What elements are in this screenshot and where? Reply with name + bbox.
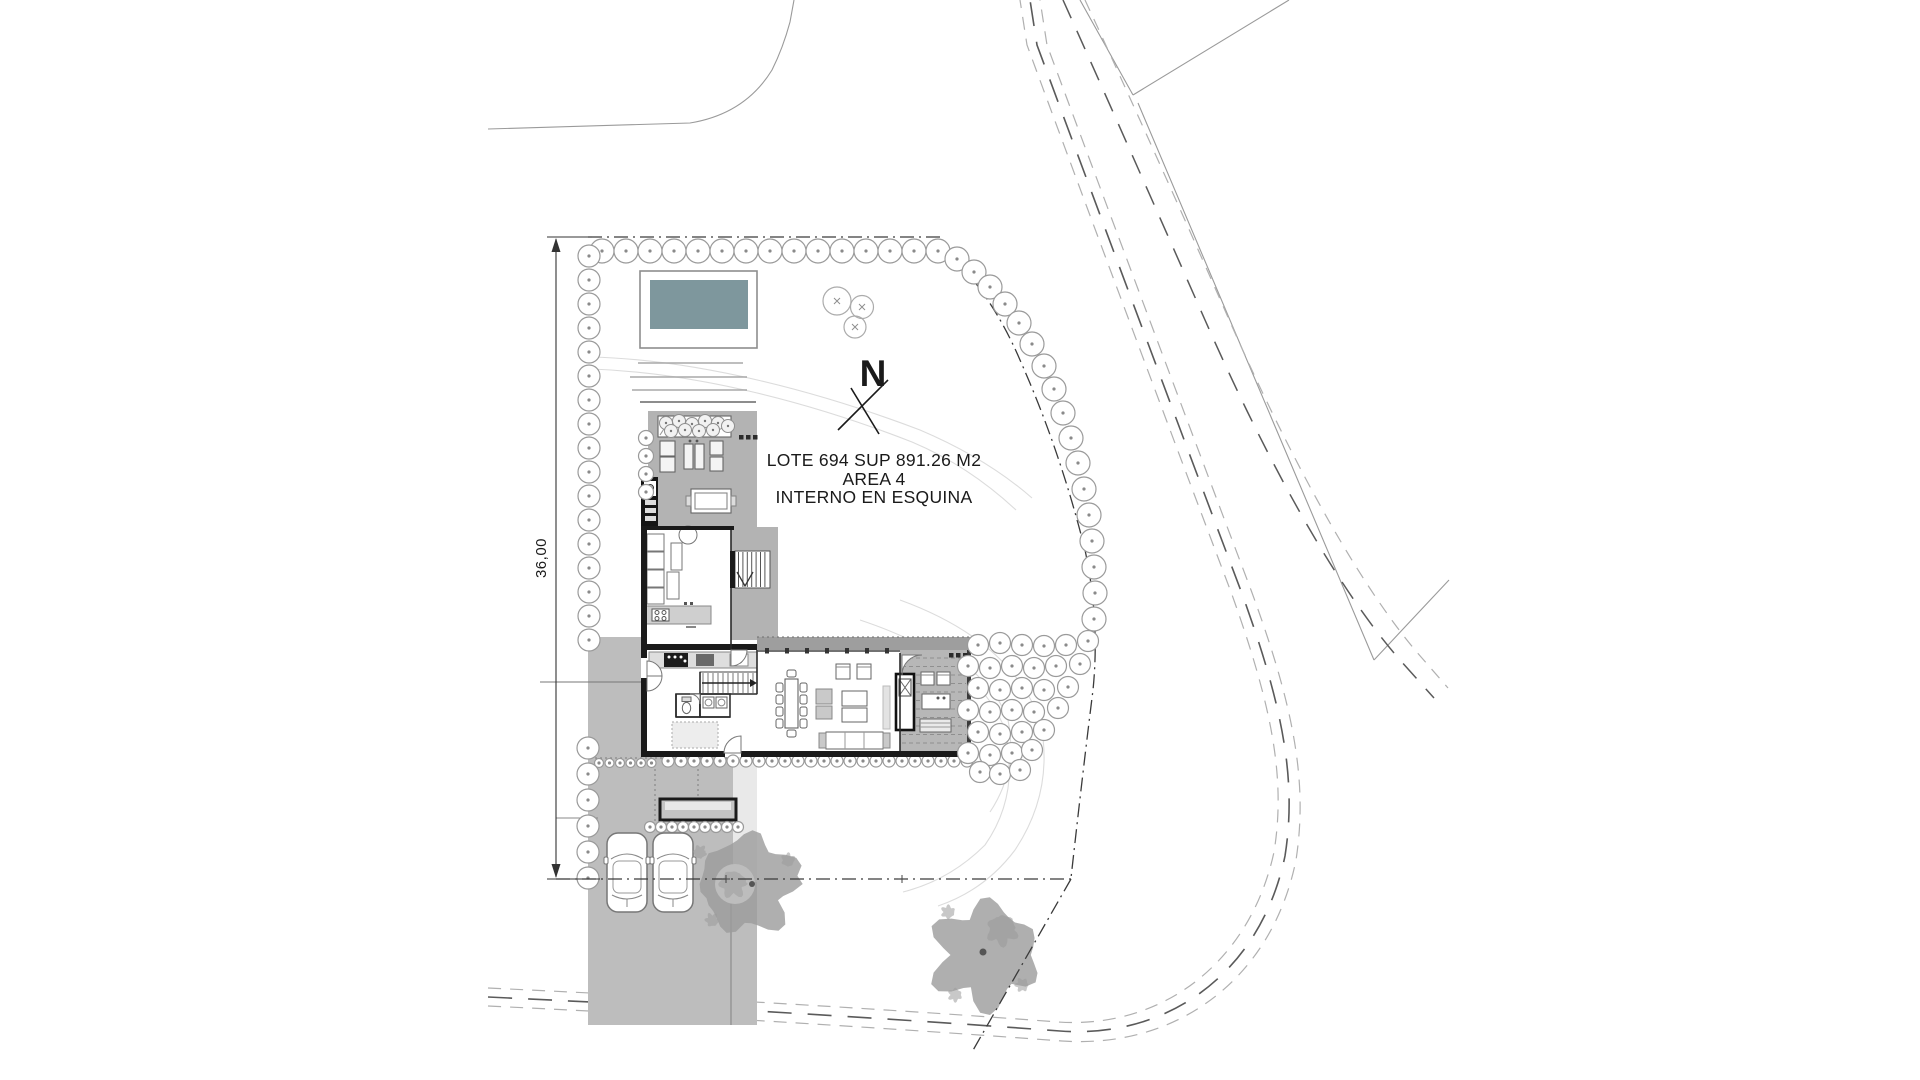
lot-label-line3: INTERNO EN ESQUINA [776, 487, 973, 507]
road-centerlines-diagonal [1063, 0, 1448, 698]
site-plan-canvas: 36,00 N LOTE 694 SUP 891.26 M2 AREA 4 IN… [0, 0, 1920, 1080]
sofa [826, 732, 883, 749]
lounge-seat [660, 457, 675, 472]
north-arrow: N [838, 353, 888, 434]
sun-lounger [684, 444, 693, 469]
laundry [700, 694, 730, 717]
armchair [836, 664, 850, 679]
neighbor-lot-line-1 [1138, 103, 1374, 660]
deck-chair [921, 672, 934, 685]
bathroom [676, 694, 700, 717]
deck-lounger [920, 719, 951, 732]
wall-west-upper [641, 526, 647, 658]
cabinet [671, 543, 682, 570]
pool-water [650, 280, 748, 329]
rug-edge [883, 686, 890, 729]
coffee-table [842, 708, 867, 722]
lot-label-line2: AREA 4 [842, 469, 905, 489]
stairs-upper [735, 551, 770, 588]
deck-chair [937, 672, 950, 685]
pool [640, 271, 757, 348]
lounge-seat [660, 441, 675, 456]
site-plan-drawing: 36,00 N LOTE 694 SUP 891.26 M2 AREA 4 IN… [0, 0, 1920, 1080]
wall-south-a [641, 751, 725, 757]
cabinet [667, 572, 679, 599]
planter-box [660, 799, 736, 820]
north-label: N [860, 353, 887, 394]
dimension-value: 36,00 [533, 538, 550, 578]
lot-line-ne-2 [1133, 0, 1289, 95]
media-wall-lower [896, 674, 914, 730]
sofa-cushion [647, 552, 664, 569]
deck-table [922, 694, 950, 709]
dim-arrow-bottom [552, 864, 561, 878]
coffee-table [842, 691, 867, 706]
road-edges-solid [488, 0, 1449, 660]
wall-west-lower [641, 678, 647, 757]
dim-arrow-top [552, 238, 561, 252]
side-table [816, 689, 832, 704]
sofa-cushion [647, 534, 664, 551]
stairs-lower [700, 672, 757, 694]
side-table [816, 706, 832, 719]
entry-mat [672, 722, 718, 748]
garden-steps [630, 363, 756, 402]
lot-label: LOTE 694 SUP 891.26 M2 AREA 4 INTERNO EN… [767, 450, 981, 507]
lounge-seat [710, 457, 723, 471]
kitchen-island [646, 602, 711, 628]
wall-upper-north [641, 526, 734, 530]
wall-lower-north [641, 644, 757, 650]
lot-label-line1: LOTE 694 SUP 891.26 M2 [767, 450, 981, 470]
existing-trees-marked [823, 287, 874, 338]
media-wall-upper [730, 551, 735, 588]
boundary-east-curve [940, 244, 1095, 878]
road-edge-top-left [488, 0, 794, 129]
sofa-cushion [647, 570, 664, 587]
wall-south-b [741, 751, 970, 757]
neighbor-lot-line-2 [1374, 580, 1449, 660]
sofa-cushion [647, 588, 664, 604]
sun-lounger [695, 444, 704, 469]
armchair [857, 664, 871, 679]
lounge-seat [710, 441, 723, 455]
